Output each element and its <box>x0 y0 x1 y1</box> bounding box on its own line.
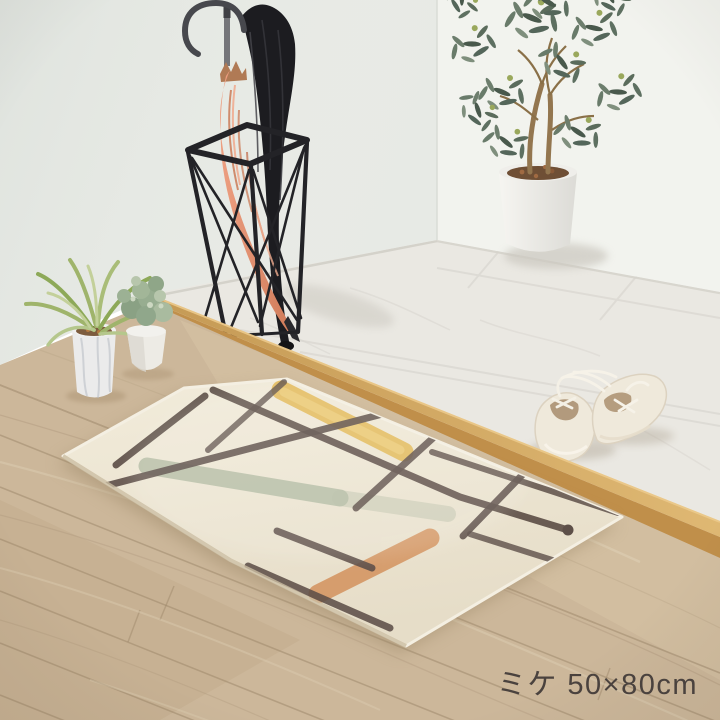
scene-canvas <box>0 0 720 720</box>
product-photo-scene: ミケ 50×80cm <box>0 0 720 720</box>
product-caption: ミケ 50×80cm <box>0 661 698 703</box>
vignette-overlay <box>0 0 720 720</box>
